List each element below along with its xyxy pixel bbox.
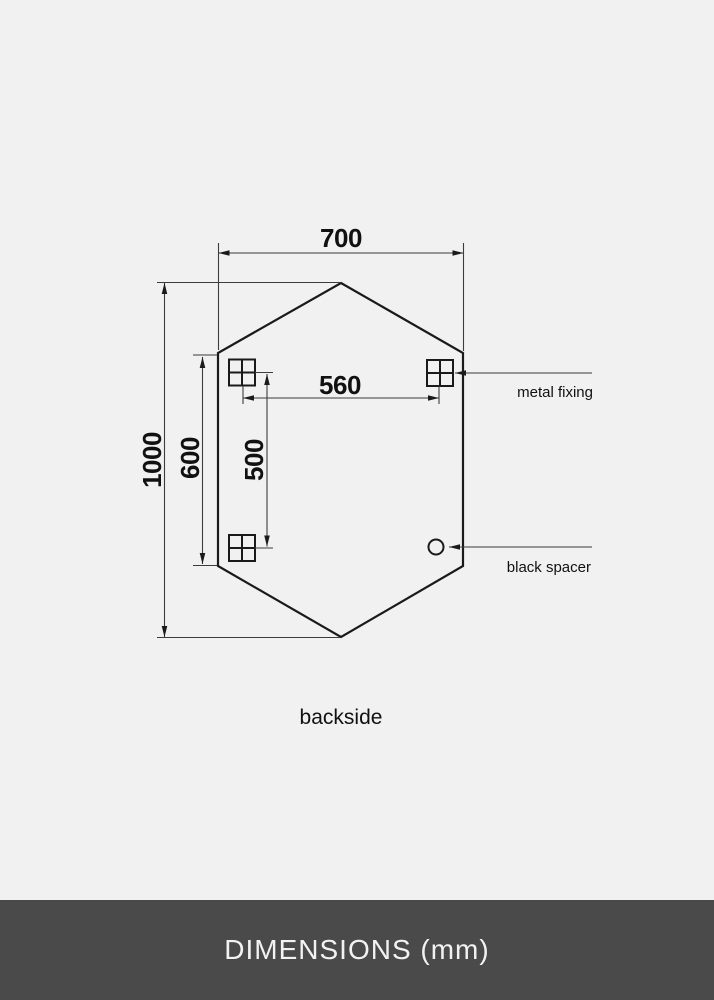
arrowhead-down bbox=[200, 553, 206, 564]
arrowhead-left bbox=[219, 250, 230, 256]
callout-black-spacer: black spacer bbox=[449, 544, 592, 576]
black-spacer-circle bbox=[429, 540, 444, 555]
arrowhead-left bbox=[243, 395, 254, 401]
arrowhead-up bbox=[200, 357, 206, 368]
dimensions-sheet: 700 1000 600 bbox=[0, 0, 714, 1000]
dimension-value-500: 500 bbox=[239, 439, 269, 481]
callout-metal-fixing: metal fixing bbox=[455, 370, 593, 401]
dimension-value-560: 560 bbox=[319, 370, 361, 400]
dimension-value-700: 700 bbox=[320, 223, 362, 253]
footer-title: DIMENSIONS (mm) bbox=[224, 934, 489, 966]
arrowhead-left bbox=[455, 370, 466, 376]
metal-fixing-top-right bbox=[427, 360, 453, 386]
dimension-value-1000: 1000 bbox=[137, 432, 167, 488]
metal-fixing-bottom-left bbox=[229, 535, 255, 561]
arrowhead-up bbox=[162, 283, 168, 294]
dimension-value-600: 600 bbox=[175, 437, 205, 479]
arrowhead-right bbox=[428, 395, 439, 401]
arrowhead-down bbox=[162, 626, 168, 637]
arrowhead-down bbox=[264, 536, 270, 547]
metal-fixing-top-left bbox=[229, 360, 255, 386]
dimension-edge-600: 600 bbox=[175, 355, 217, 566]
metal-fixing-label: metal fixing bbox=[517, 384, 593, 401]
arrowhead-up bbox=[264, 374, 270, 385]
footer-bar: DIMENSIONS (mm) bbox=[0, 900, 714, 1000]
dimension-fixings-500: 500 bbox=[239, 373, 273, 549]
arrowhead-left bbox=[449, 544, 460, 550]
technical-drawing: 700 1000 600 bbox=[0, 0, 714, 900]
drawing-svg: 700 1000 600 bbox=[0, 0, 714, 900]
dimension-fixings-560: 560 bbox=[243, 370, 439, 404]
black-spacer-label: black spacer bbox=[507, 559, 591, 576]
view-label-backside: backside bbox=[300, 706, 383, 729]
arrowhead-right bbox=[453, 250, 464, 256]
